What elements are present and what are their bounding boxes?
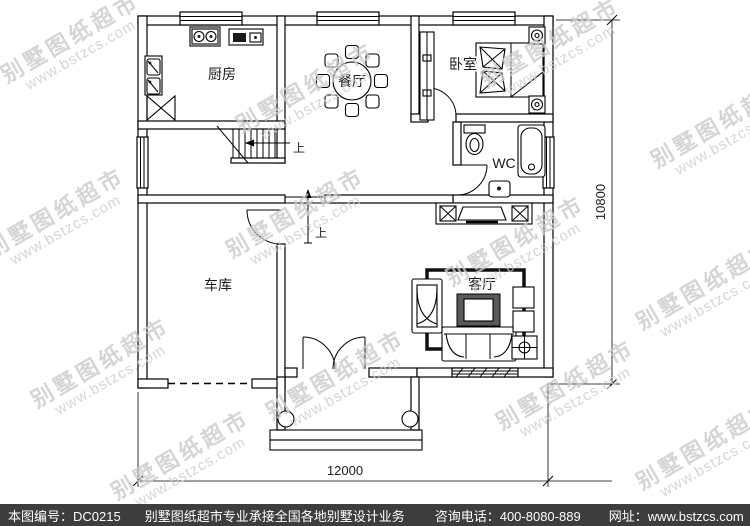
window-hall-left xyxy=(137,137,148,188)
tv-cabinet xyxy=(436,203,532,224)
footer-plan-id: 本图编号：DC0215 xyxy=(8,506,121,525)
wash-basin xyxy=(489,181,510,197)
footer-service-text: 别墅图纸超市专业承接全国各地别墅设计业务 xyxy=(145,506,405,525)
door-entrance-double xyxy=(303,337,365,369)
toilet xyxy=(464,125,485,155)
window-kitchen xyxy=(180,12,242,25)
window-bedroom xyxy=(453,12,515,25)
wardrobe xyxy=(420,32,434,120)
window-living-bottom xyxy=(452,368,518,377)
kitchen-fixtures xyxy=(145,27,263,120)
room-label-wc: WC xyxy=(492,155,515,171)
door-garage xyxy=(247,210,281,244)
stairs-up-label-1: 上 xyxy=(293,141,305,155)
bedroom-furniture xyxy=(420,27,545,120)
porch-column-left xyxy=(278,411,294,427)
nightstand-plant-top xyxy=(529,27,545,44)
double-bed xyxy=(476,43,543,97)
dimension-width-label: 12000 xyxy=(327,463,363,478)
room-label-garage: 车库 xyxy=(204,277,232,293)
kitchen-sink xyxy=(145,56,162,95)
door-wc xyxy=(457,165,487,195)
corner-fan-table xyxy=(512,336,537,359)
dimension-height-label: 10800 xyxy=(593,184,608,220)
corner-cabinet xyxy=(147,96,175,120)
room-label-bedroom: 卧室 xyxy=(449,56,477,72)
floor-plan-page: 12000 10800 厨房 餐厅 卧室 WC 车库 客厅 上 上 别墅图纸超市… xyxy=(0,0,750,526)
entrance-porch xyxy=(270,411,422,450)
porch-step-2 xyxy=(270,440,422,450)
stairs-up-label-2: 上 xyxy=(315,226,327,240)
coffee-table xyxy=(457,294,500,326)
stair-up-arrow-2 xyxy=(304,189,312,243)
armchair xyxy=(412,279,442,333)
footer-website: 网址：www.bstzcs.com xyxy=(609,506,744,525)
footer-bar: 本图编号：DC0215 别墅图纸超市专业承接全国各地别墅设计业务 咨询电话：40… xyxy=(0,504,750,526)
porch-column-right xyxy=(402,411,418,427)
side-table-1 xyxy=(513,287,534,308)
room-label-living: 客厅 xyxy=(468,276,496,292)
window-dining xyxy=(317,12,379,25)
room-label-dining: 餐厅 xyxy=(338,73,366,89)
side-table-2 xyxy=(513,311,534,332)
room-label-kitchen: 厨房 xyxy=(208,66,236,82)
porch-step-1 xyxy=(270,430,422,440)
footer-phone: 咨询电话：400-8080-889 xyxy=(435,506,581,525)
bathtub xyxy=(518,125,545,177)
floor-plan-drawing: 12000 10800 厨房 餐厅 卧室 WC 车库 客厅 上 上 xyxy=(0,0,750,504)
sofa xyxy=(442,327,516,361)
nightstand-plant-bottom xyxy=(529,96,545,113)
